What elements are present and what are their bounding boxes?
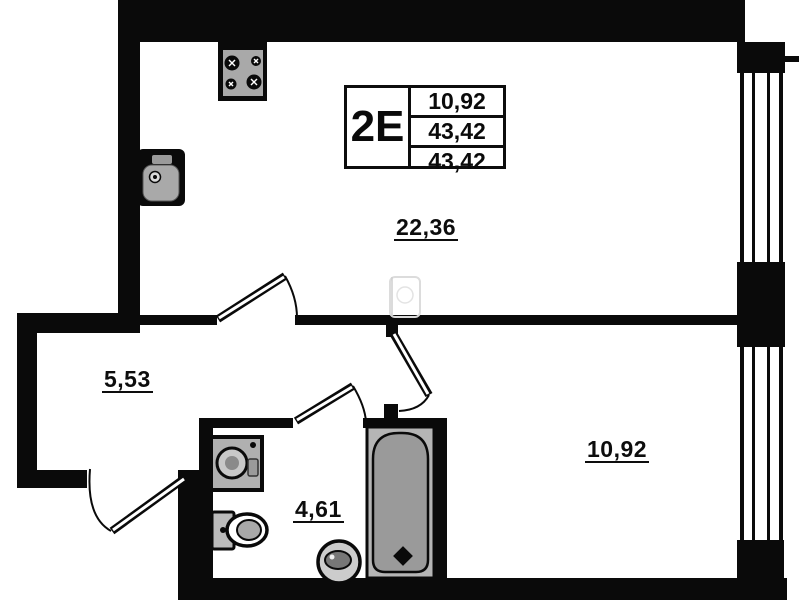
room-label-bedroom: 10,92 xyxy=(585,437,649,463)
room-label-hallway: 5,53 xyxy=(102,367,153,393)
floor-drain-icon xyxy=(318,541,360,583)
room-label-living-kitchen: 22,36 xyxy=(394,215,458,241)
bedroom-door xyxy=(393,333,429,411)
ghost-fixture-icon xyxy=(390,277,420,317)
unit-label: 2E xyxy=(347,88,411,166)
title-block: 2E 10,92 43,42 43,42 xyxy=(344,85,506,169)
living-room-door xyxy=(218,276,297,319)
toilet-icon xyxy=(212,512,267,549)
washing-machine-icon xyxy=(211,437,262,490)
window-bedroom xyxy=(740,347,783,540)
bathtub-icon xyxy=(367,427,434,578)
kitchen-sink-icon xyxy=(137,149,185,206)
room-label-bathroom: 4,61 xyxy=(293,497,344,523)
bathroom-door xyxy=(296,386,366,422)
floor-plan: 2E 10,92 43,42 43,42 22,36 5,53 4,61 10,… xyxy=(0,0,799,600)
title-block-area-row: 43,42 xyxy=(411,118,503,148)
stove-4-burner-icon xyxy=(218,42,267,101)
entry-door xyxy=(89,469,185,531)
title-block-area-row: 43,42 xyxy=(411,148,503,175)
title-block-area-row: 10,92 xyxy=(411,88,503,118)
window-living xyxy=(740,73,783,262)
title-block-areas: 10,92 43,42 43,42 xyxy=(411,88,503,166)
